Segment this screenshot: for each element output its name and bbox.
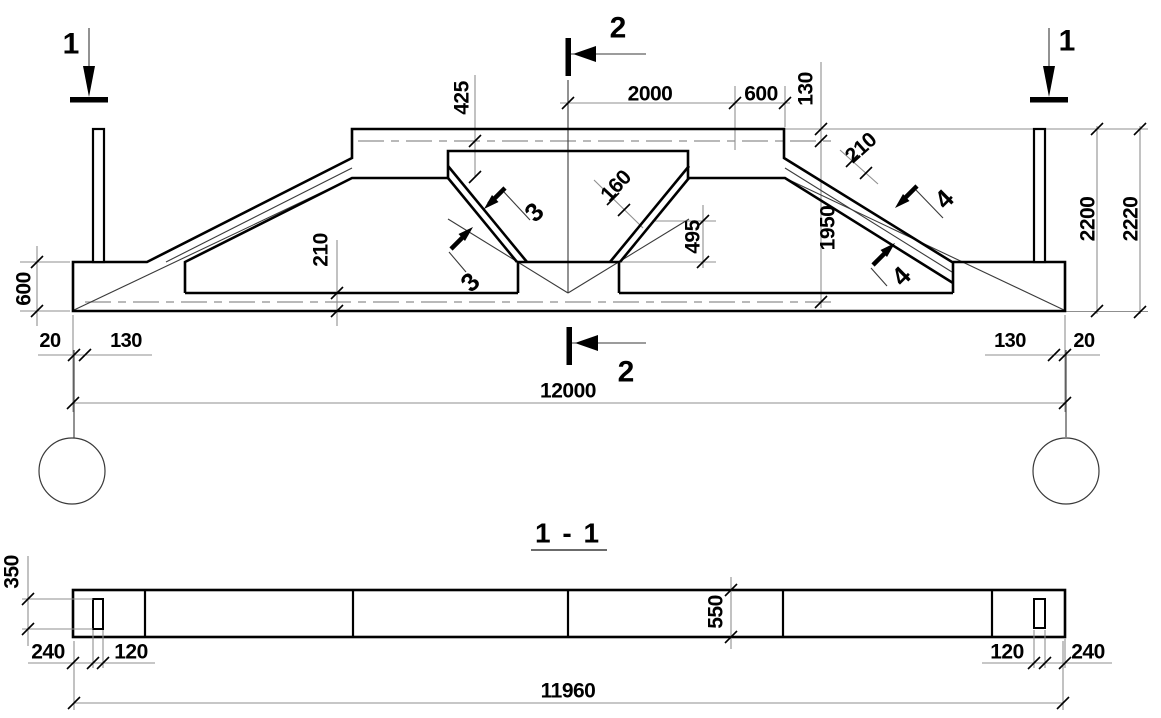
cut-4-lower-label: 4 [885,260,917,292]
grid-bubble-right [1033,438,1099,504]
technical-drawing: 2000 600 425 130 1950 2200 2220 210 495 … [0,0,1161,718]
grid-bubble-left [39,438,105,504]
dimension-labels: 2000 600 425 130 1950 2200 2220 210 495 … [13,72,1143,402]
dim-120-left: 120 [114,641,148,664]
dim-600-top: 600 [744,83,778,106]
truss-elevation: 2000 600 425 130 1950 2200 2220 210 495 … [13,12,1149,505]
grid-axes [39,350,1099,504]
marker-1-left-label: 1 [63,28,80,61]
dim-11960: 11960 [541,680,596,703]
dim-120-right: 120 [990,641,1024,664]
section-title-text: 1 - 1 [535,518,601,549]
section-marker-1-left: 1 [63,28,108,103]
extension-lines [20,62,1148,412]
dim-130-right: 130 [994,330,1026,352]
dim-495: 495 [682,219,705,253]
dim-550: 550 [705,595,728,629]
dim-12000: 12000 [540,380,596,403]
cut-mark-4-lower: 4 [871,243,917,292]
truss-outer-outline [73,129,1065,311]
dim-210-diagonal: 210 [841,128,881,168]
dim-350: 350 [1,555,24,589]
dim-210-chord: 210 [310,233,333,267]
cut-4-upper-label: 4 [928,183,960,215]
dim-240-right: 240 [1071,641,1105,664]
dim-1950: 1950 [817,206,840,251]
dim-160: 160 [596,166,636,206]
dim-2000: 2000 [628,83,673,106]
cut-mark-4-upper: 4 [895,183,960,218]
end-post-left [93,129,104,262]
marker-1-right-label: 1 [1059,25,1076,58]
dim-130-top: 130 [795,72,818,106]
drawing-sheet: 2000 600 425 130 1950 2200 2220 210 495 … [0,0,1161,718]
dim-600-left: 600 [13,272,36,306]
section-view-1-1: 1 - 1 [1,518,1113,711]
dim-20-right: 20 [1073,330,1095,352]
member-centerlines [74,80,1064,310]
dim-240-left: 240 [31,641,65,664]
cut-mark-3-lower: 3 [449,227,486,298]
anchor-slot-right [1034,599,1045,628]
marker-2-top-label: 2 [610,12,627,45]
section-title: 1 - 1 [531,518,607,551]
marker-2-bottom-label: 2 [618,356,635,389]
dim-20-left: 20 [39,330,61,352]
dim-2200: 2200 [1077,197,1100,242]
dim-2220: 2220 [1120,197,1143,242]
anchor-slot-left [93,599,103,629]
dim-130-left: 130 [110,330,142,352]
dim-425: 425 [451,80,474,114]
section-marker-1-right: 1 [1030,25,1075,103]
cut-3-upper-label: 3 [518,196,549,227]
dimension-ticks [31,97,1146,409]
end-post-right [1034,129,1045,262]
section-marker-2-top: 2 [566,12,647,77]
